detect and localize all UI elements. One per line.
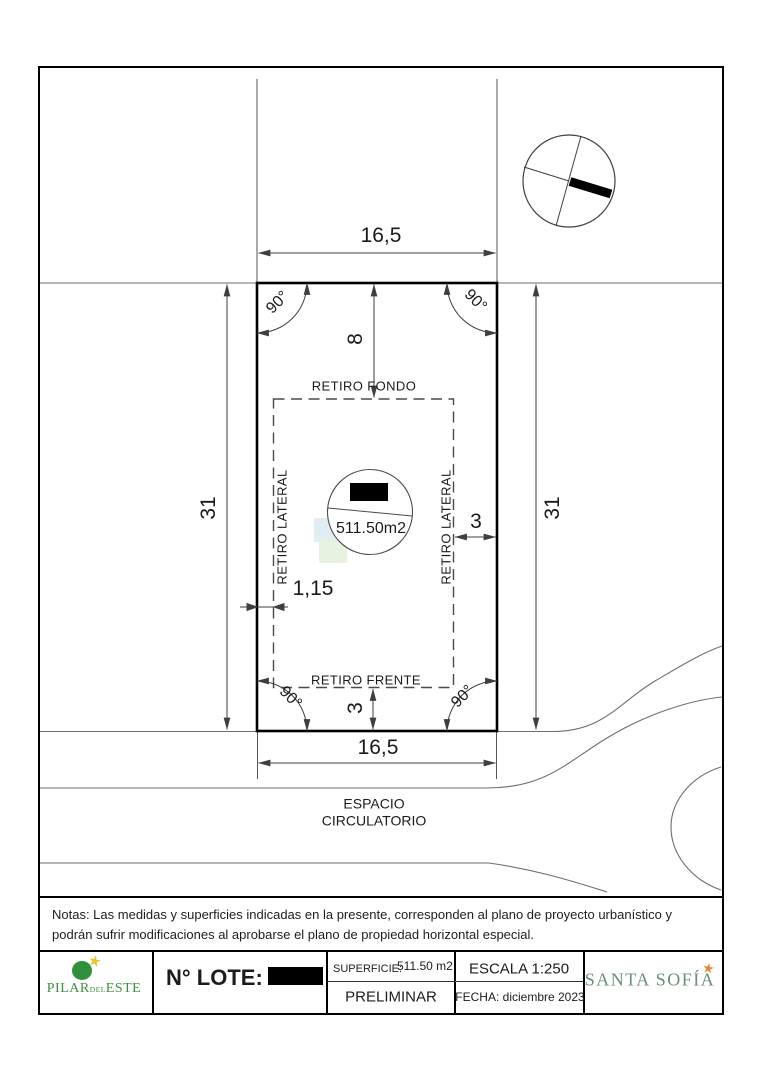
- superficie-value: 511.50 m2: [397, 959, 453, 973]
- lote-label: N° LOTE:: [166, 965, 263, 991]
- escala-label: ESCALA 1:250: [469, 961, 569, 978]
- fecha-label: FECHA: diciembre 2023: [455, 990, 584, 1004]
- sheet-border: [38, 66, 724, 1015]
- notes-text: Notas: Las medidas y superficies indicad…: [52, 905, 704, 944]
- lote-number-redacted: [268, 967, 323, 985]
- preliminar-label: PRELIMINAR: [345, 989, 437, 1006]
- titleblock-mid-divider: [327, 981, 583, 982]
- superficie-label: SUPERFICIE:: [333, 963, 402, 975]
- titleblock-divider-1: [152, 950, 154, 1013]
- santa-sofia-text: SANTA SOFÍA: [585, 970, 716, 991]
- notes-box-top-border: [38, 896, 724, 898]
- pilar-logo-text: PILARDELESTE: [47, 981, 142, 997]
- plan-sheet: 16,5 16,5 31 31 8 3 3 1,15 90° 90° 90° 9…: [0, 0, 763, 1079]
- titleblock-top-border: [38, 950, 724, 952]
